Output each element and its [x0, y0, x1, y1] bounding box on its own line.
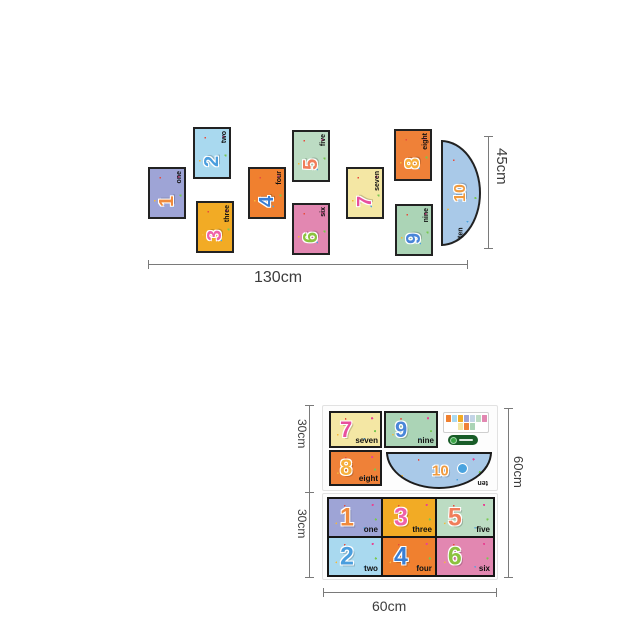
thumb-swatch — [458, 415, 463, 422]
number-digit: 6 — [448, 544, 462, 569]
card-content: 6 six — [295, 206, 327, 252]
dimension-line-45cm — [488, 136, 489, 249]
thumb-swatch — [464, 415, 469, 422]
sheet-card-ten-halfcircle: 10 ten — [386, 452, 492, 489]
number-digit: 10 — [453, 184, 469, 202]
number-word: five — [476, 526, 490, 534]
number-word: eight — [359, 475, 378, 483]
card-content: 4 four — [251, 170, 283, 216]
spread-card-five: 5 five — [292, 130, 330, 182]
number-digit: 3 — [394, 505, 408, 530]
brand-logo-icon — [450, 437, 457, 444]
number-word: four — [416, 565, 432, 573]
number-word: ten — [414, 456, 488, 486]
number-digit: 6 — [301, 232, 321, 243]
thumb-halfcircle — [470, 415, 475, 422]
decoration-dot — [457, 463, 468, 474]
dimension-label-60cm-bottom: 60cm — [372, 598, 406, 614]
number-word: one — [176, 171, 183, 183]
card-content: 3 three — [199, 204, 231, 250]
card-content: 9 nine — [398, 207, 430, 253]
sheet-card-two: 2 two — [329, 538, 381, 575]
thumb-swatch — [464, 423, 469, 430]
number-digit: 3 — [205, 230, 225, 241]
number-digit: 1 — [157, 196, 177, 207]
brand-text-mark — [459, 439, 473, 441]
spread-card-two: 2 two — [193, 127, 231, 179]
number-digit: 9 — [395, 419, 407, 441]
number-digit: 2 — [340, 544, 354, 569]
dimension-line-sheet-right — [508, 408, 509, 578]
thumb-swatch — [452, 415, 457, 422]
number-word: five — [320, 134, 327, 146]
spread-card-eight: 8 eight — [394, 129, 432, 181]
card-content: 10 ten — [445, 144, 477, 242]
sheet-card-six: 6 six — [437, 538, 493, 575]
thumb-swatch — [470, 423, 475, 430]
spread-card-six: 6 six — [292, 203, 330, 255]
sheet-card-nine: 9 nine — [384, 411, 438, 448]
sheet-card-one: 1 one — [329, 499, 381, 536]
number-word: seven — [374, 171, 381, 191]
dimension-label-45cm: 45cm — [493, 148, 510, 185]
number-digit: 7 — [355, 196, 375, 207]
spread-card-nine: 9 nine — [395, 204, 433, 256]
number-word: eight — [422, 133, 429, 150]
spread-card-seven: 7 seven — [346, 167, 384, 219]
sheet-card-eight: 8 eight — [329, 450, 382, 486]
card-content: 1 one — [151, 170, 183, 216]
dimension-label-60cm-right: 60cm — [511, 456, 526, 488]
product-image-canvas: 1 one 2 two 3 three 4 four 5 fiv — [0, 0, 640, 640]
number-word: two — [364, 565, 378, 573]
spread-card-one: 1 one — [148, 167, 186, 219]
number-word: two — [221, 131, 228, 143]
thumb-swatch — [482, 415, 487, 422]
number-digit: 1 — [340, 505, 354, 530]
number-word: six — [479, 565, 490, 573]
sheet-top-half: 7 seven 9 nine 8 eight 10 ten — [322, 405, 498, 491]
sheet-card-grid: 1 one 3 three 5 five 2 two 4 four — [327, 497, 495, 577]
card-content: 5 five — [295, 133, 327, 179]
number-digit: 5 — [448, 505, 462, 530]
dimension-line-130cm — [148, 264, 468, 265]
number-word: nine — [418, 437, 434, 445]
dimension-label-130cm: 130cm — [254, 269, 302, 287]
sheet-card-seven: 7 seven — [329, 411, 382, 448]
number-digit: 2 — [202, 156, 222, 167]
dimension-label-30cm-bottom: 30cm — [295, 509, 309, 538]
spread-card-four: 4 four — [248, 167, 286, 219]
number-word: ten — [458, 228, 465, 239]
number-digit: 4 — [257, 196, 277, 207]
number-word: nine — [423, 208, 430, 222]
number-word: six — [320, 207, 327, 217]
spread-card-ten-halfcircle: 10 ten — [441, 140, 481, 246]
dimension-mid-tick — [305, 492, 314, 493]
number-word: seven — [355, 437, 378, 445]
number-word: three — [224, 205, 231, 222]
number-digit: 7 — [340, 419, 352, 441]
sheet-card-five: 5 five — [437, 499, 493, 536]
number-digit: 4 — [394, 544, 408, 569]
spread-card-three: 3 three — [196, 201, 234, 253]
card-content: 2 two — [196, 130, 228, 176]
thumb-swatch — [446, 415, 451, 422]
card-content: 7 seven — [349, 170, 381, 216]
dimension-line-sheet-left — [309, 405, 310, 578]
number-word: one — [364, 526, 378, 534]
dimension-label-30cm-top: 30cm — [295, 419, 309, 448]
thumb-swatch — [476, 415, 481, 422]
sheet-card-three: 3 three — [383, 499, 435, 536]
number-word: three — [412, 526, 432, 534]
layout-preview-thumbnail — [443, 412, 489, 433]
number-word: four — [276, 171, 283, 185]
card-content: 8 eight — [397, 132, 429, 178]
number-digit: 8 — [403, 158, 423, 169]
number-digit: 5 — [301, 159, 321, 170]
thumb-swatch — [458, 423, 463, 430]
brand-badge — [448, 435, 478, 445]
sheet-card-four: 4 four — [383, 538, 435, 575]
number-digit: 8 — [340, 457, 352, 479]
number-digit: 9 — [404, 233, 424, 244]
dimension-line-sheet-bottom — [323, 592, 497, 593]
sheet-bottom-half: 1 one 3 three 5 five 2 two 4 four — [322, 493, 498, 580]
